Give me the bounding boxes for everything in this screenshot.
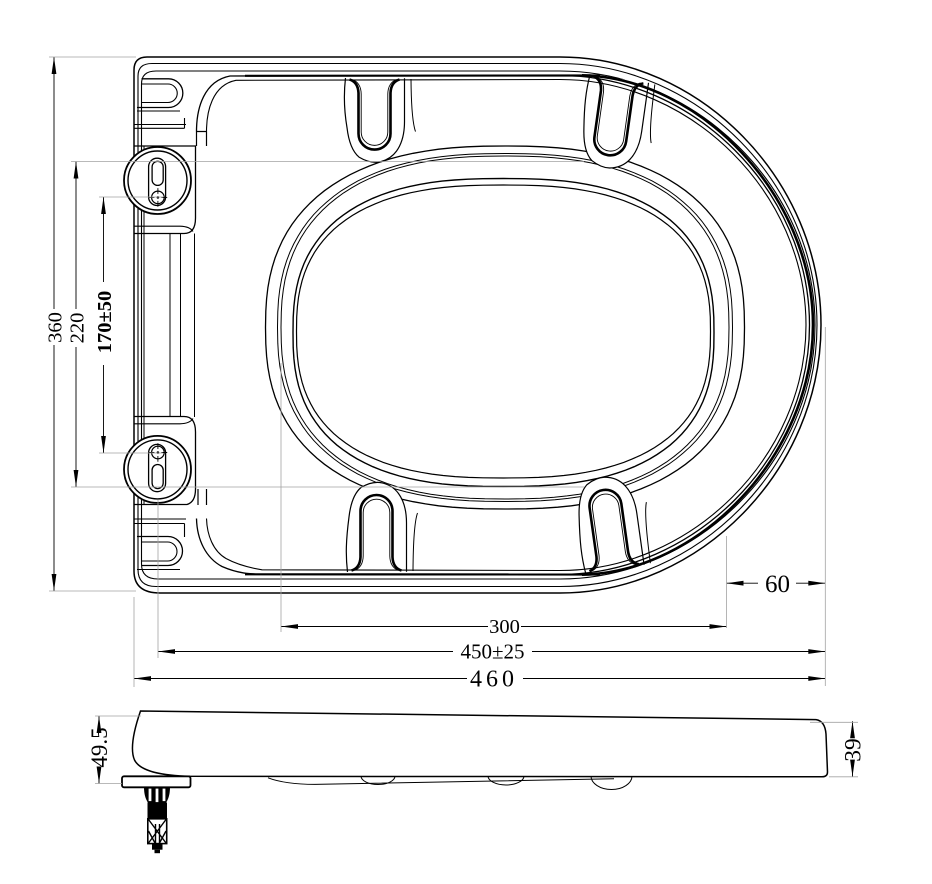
svg-text:360: 360: [44, 312, 66, 343]
svg-text:39: 39: [841, 738, 867, 762]
svg-text:60: 60: [765, 571, 790, 598]
svg-text:49.5: 49.5: [87, 727, 112, 767]
svg-text:460: 460: [470, 667, 518, 693]
svg-text:170±50: 170±50: [94, 291, 116, 354]
svg-text:300: 300: [489, 616, 520, 638]
svg-text:220: 220: [66, 313, 88, 344]
svg-text:450±25: 450±25: [460, 640, 524, 664]
